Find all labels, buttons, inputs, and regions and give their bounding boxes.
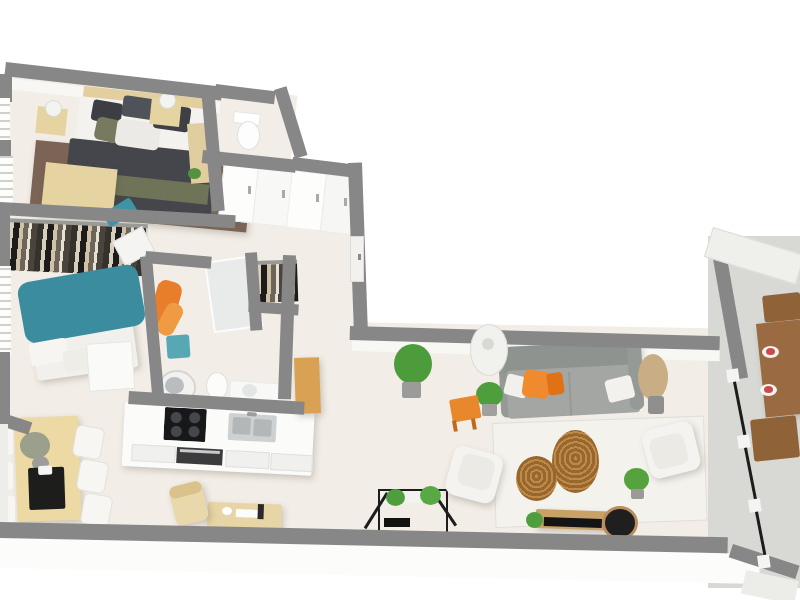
wallface-left-low: [0, 424, 8, 526]
kitchen-drawer-3: [270, 453, 313, 472]
balcony-chair-bottom: [750, 415, 800, 462]
desk-paper: [236, 509, 259, 518]
desk-lamp: [257, 504, 264, 519]
kitchen-drawer-1: [131, 444, 176, 463]
chest-bed2: [86, 341, 135, 392]
closet-handle-4: [344, 198, 347, 206]
floorplan-3d-render: [0, 0, 800, 600]
entry-door-handle: [358, 254, 361, 260]
plant-big-left-pot: [402, 382, 421, 398]
door-jamb-2: [737, 434, 751, 449]
bath-sink: [242, 384, 257, 397]
balcony-food-2: [764, 386, 773, 393]
wicker-table-small: [516, 456, 557, 501]
dining-basket-item: [38, 466, 52, 475]
closet-handle-3: [316, 194, 319, 202]
wicker-table-big: [552, 430, 599, 493]
washer-drum: [165, 377, 184, 394]
desk-cup: [222, 507, 232, 515]
dining-plant-foliage: [20, 432, 50, 459]
console-plant: [526, 512, 543, 528]
shelf-black-box: [384, 518, 410, 527]
balcony-chair-top: [762, 292, 800, 323]
shelf-plant-1: [386, 489, 405, 506]
teal-basket: [166, 334, 191, 359]
sofa-pillow-orange-2: [546, 372, 565, 396]
plant-small-2: [624, 468, 649, 491]
door-jamb-1: [726, 368, 740, 383]
dresser-plant: [188, 168, 201, 179]
wall-left-3: [0, 208, 10, 270]
wall-left-4: [0, 352, 10, 416]
plant-big-left-foliage: [394, 344, 432, 384]
balcony-food-1: [766, 348, 775, 355]
kitchen-drawer-2: [225, 450, 270, 469]
window-left-2: [0, 266, 11, 356]
dining-chair-right-2: [75, 458, 109, 495]
feather-plant: [638, 354, 668, 400]
sink-basin-1: [232, 417, 251, 435]
plant-small-1-pot: [482, 404, 497, 416]
dining-chair-right-1: [71, 424, 105, 461]
cooktop: [163, 407, 207, 442]
closet-handle-1: [248, 186, 251, 194]
lamp-left: [45, 100, 62, 117]
feather-plant-pot: [648, 396, 664, 414]
window-bedroom1-left: [0, 98, 10, 144]
door-jamb-3: [748, 498, 762, 513]
floor-lamp-shade: [470, 324, 508, 376]
closet-handle-2: [282, 190, 285, 198]
sink-basin-2: [253, 419, 272, 437]
plant-small-2-pot: [631, 489, 644, 499]
faucet: [247, 412, 257, 417]
shelf-plant-2: [420, 486, 441, 505]
door-jamb-4: [757, 554, 771, 569]
entry-door: [350, 236, 364, 282]
toilet-bowl-wc: [237, 121, 260, 150]
floor-lamp-top: [482, 338, 494, 350]
